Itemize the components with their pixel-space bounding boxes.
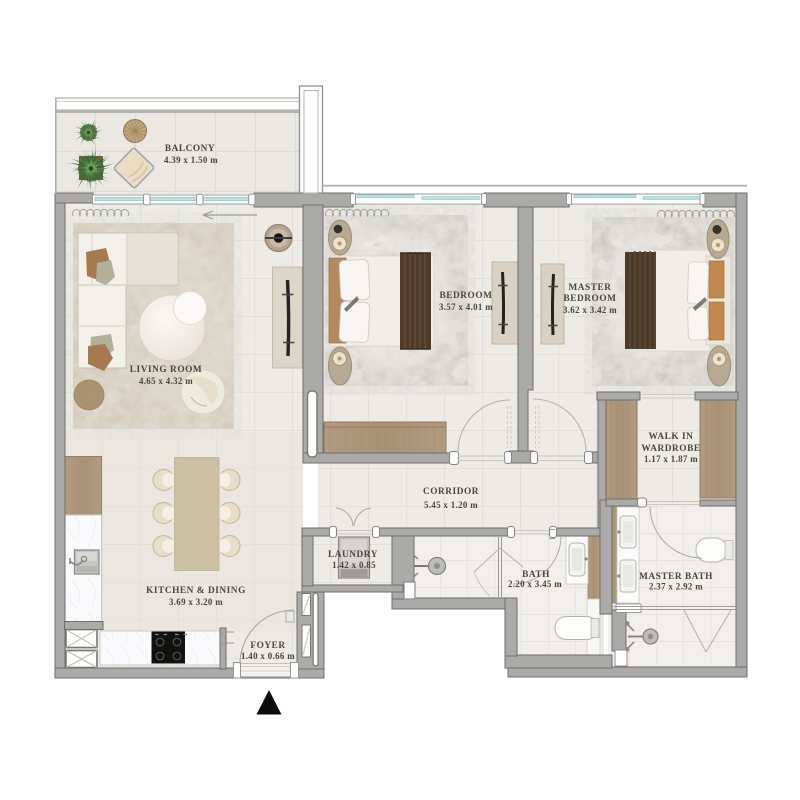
svg-text:2.37 x 2.92 m: 2.37 x 2.92 m [649,582,703,592]
svg-text:WALK IN: WALK IN [649,432,694,442]
svg-text:MASTER: MASTER [568,283,611,293]
svg-text:FOYER: FOYER [250,641,285,651]
svg-text:LIVING ROOM: LIVING ROOM [130,365,202,375]
svg-text:3.69 x 3.20 m: 3.69 x 3.20 m [169,597,223,607]
svg-text:MASTER BATH: MASTER BATH [639,572,713,582]
svg-text:4.39 x 1.50 m: 4.39 x 1.50 m [164,155,218,165]
svg-text:LAUNDRY: LAUNDRY [328,550,378,560]
svg-text:5.45 x 1.20 m: 5.45 x 1.20 m [424,500,478,510]
svg-text:1.40 x 0.66 m: 1.40 x 0.66 m [241,651,295,661]
svg-text:1.17 x 1.87 m: 1.17 x 1.87 m [644,454,698,464]
svg-text:WARDROBE: WARDROBE [641,444,700,454]
svg-text:1.42 x 0.85: 1.42 x 0.85 [332,560,376,570]
svg-text:3.62 x 3.42 m: 3.62 x 3.42 m [563,305,617,315]
svg-text:KITCHEN & DINING: KITCHEN & DINING [146,586,246,596]
svg-text:4.65 x 4.32 m: 4.65 x 4.32 m [139,376,193,386]
svg-text:BALCONY: BALCONY [165,144,215,154]
svg-text:CORRIDOR: CORRIDOR [423,487,479,497]
svg-text:3.57 x 4.01 m: 3.57 x 4.01 m [439,302,493,312]
svg-text:BEDROOM: BEDROOM [564,294,617,304]
svg-text:2.20 x 3.45 m: 2.20 x 3.45 m [508,579,562,589]
svg-text:BEDROOM: BEDROOM [440,291,493,301]
